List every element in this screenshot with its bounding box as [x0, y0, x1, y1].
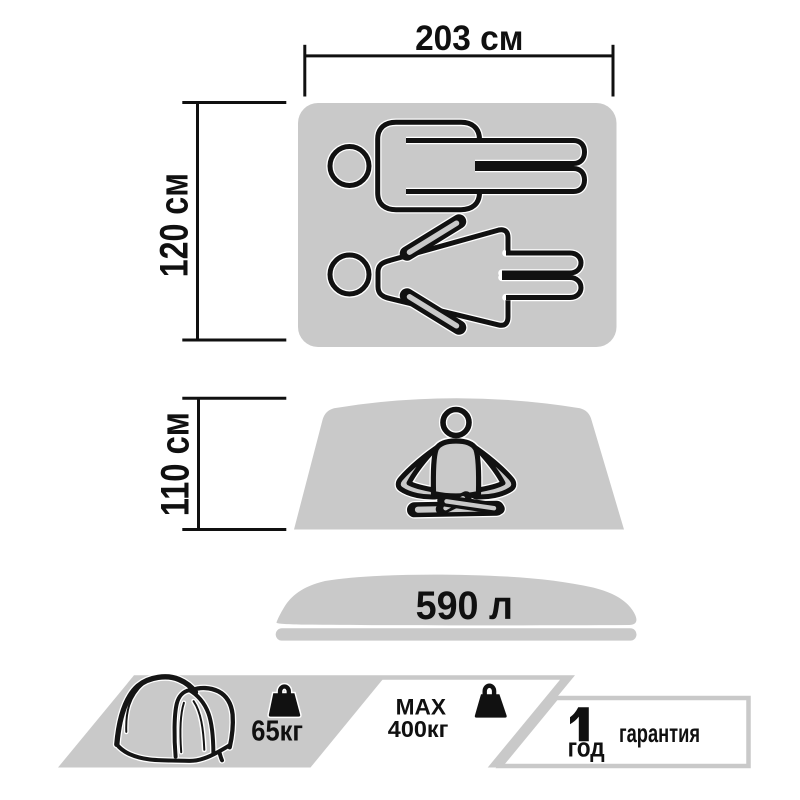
svg-text:400кг: 400кг	[388, 716, 449, 742]
svg-text:гарантия: гарантия	[619, 718, 700, 748]
svg-text:110 см: 110 см	[154, 412, 198, 516]
svg-text:65кг: 65кг	[251, 716, 303, 748]
svg-text:590 л: 590 л	[416, 584, 513, 628]
svg-text:год: год	[568, 732, 605, 762]
svg-text:203 см: 203 см	[415, 18, 523, 58]
svg-text:120 см: 120 см	[153, 173, 197, 277]
